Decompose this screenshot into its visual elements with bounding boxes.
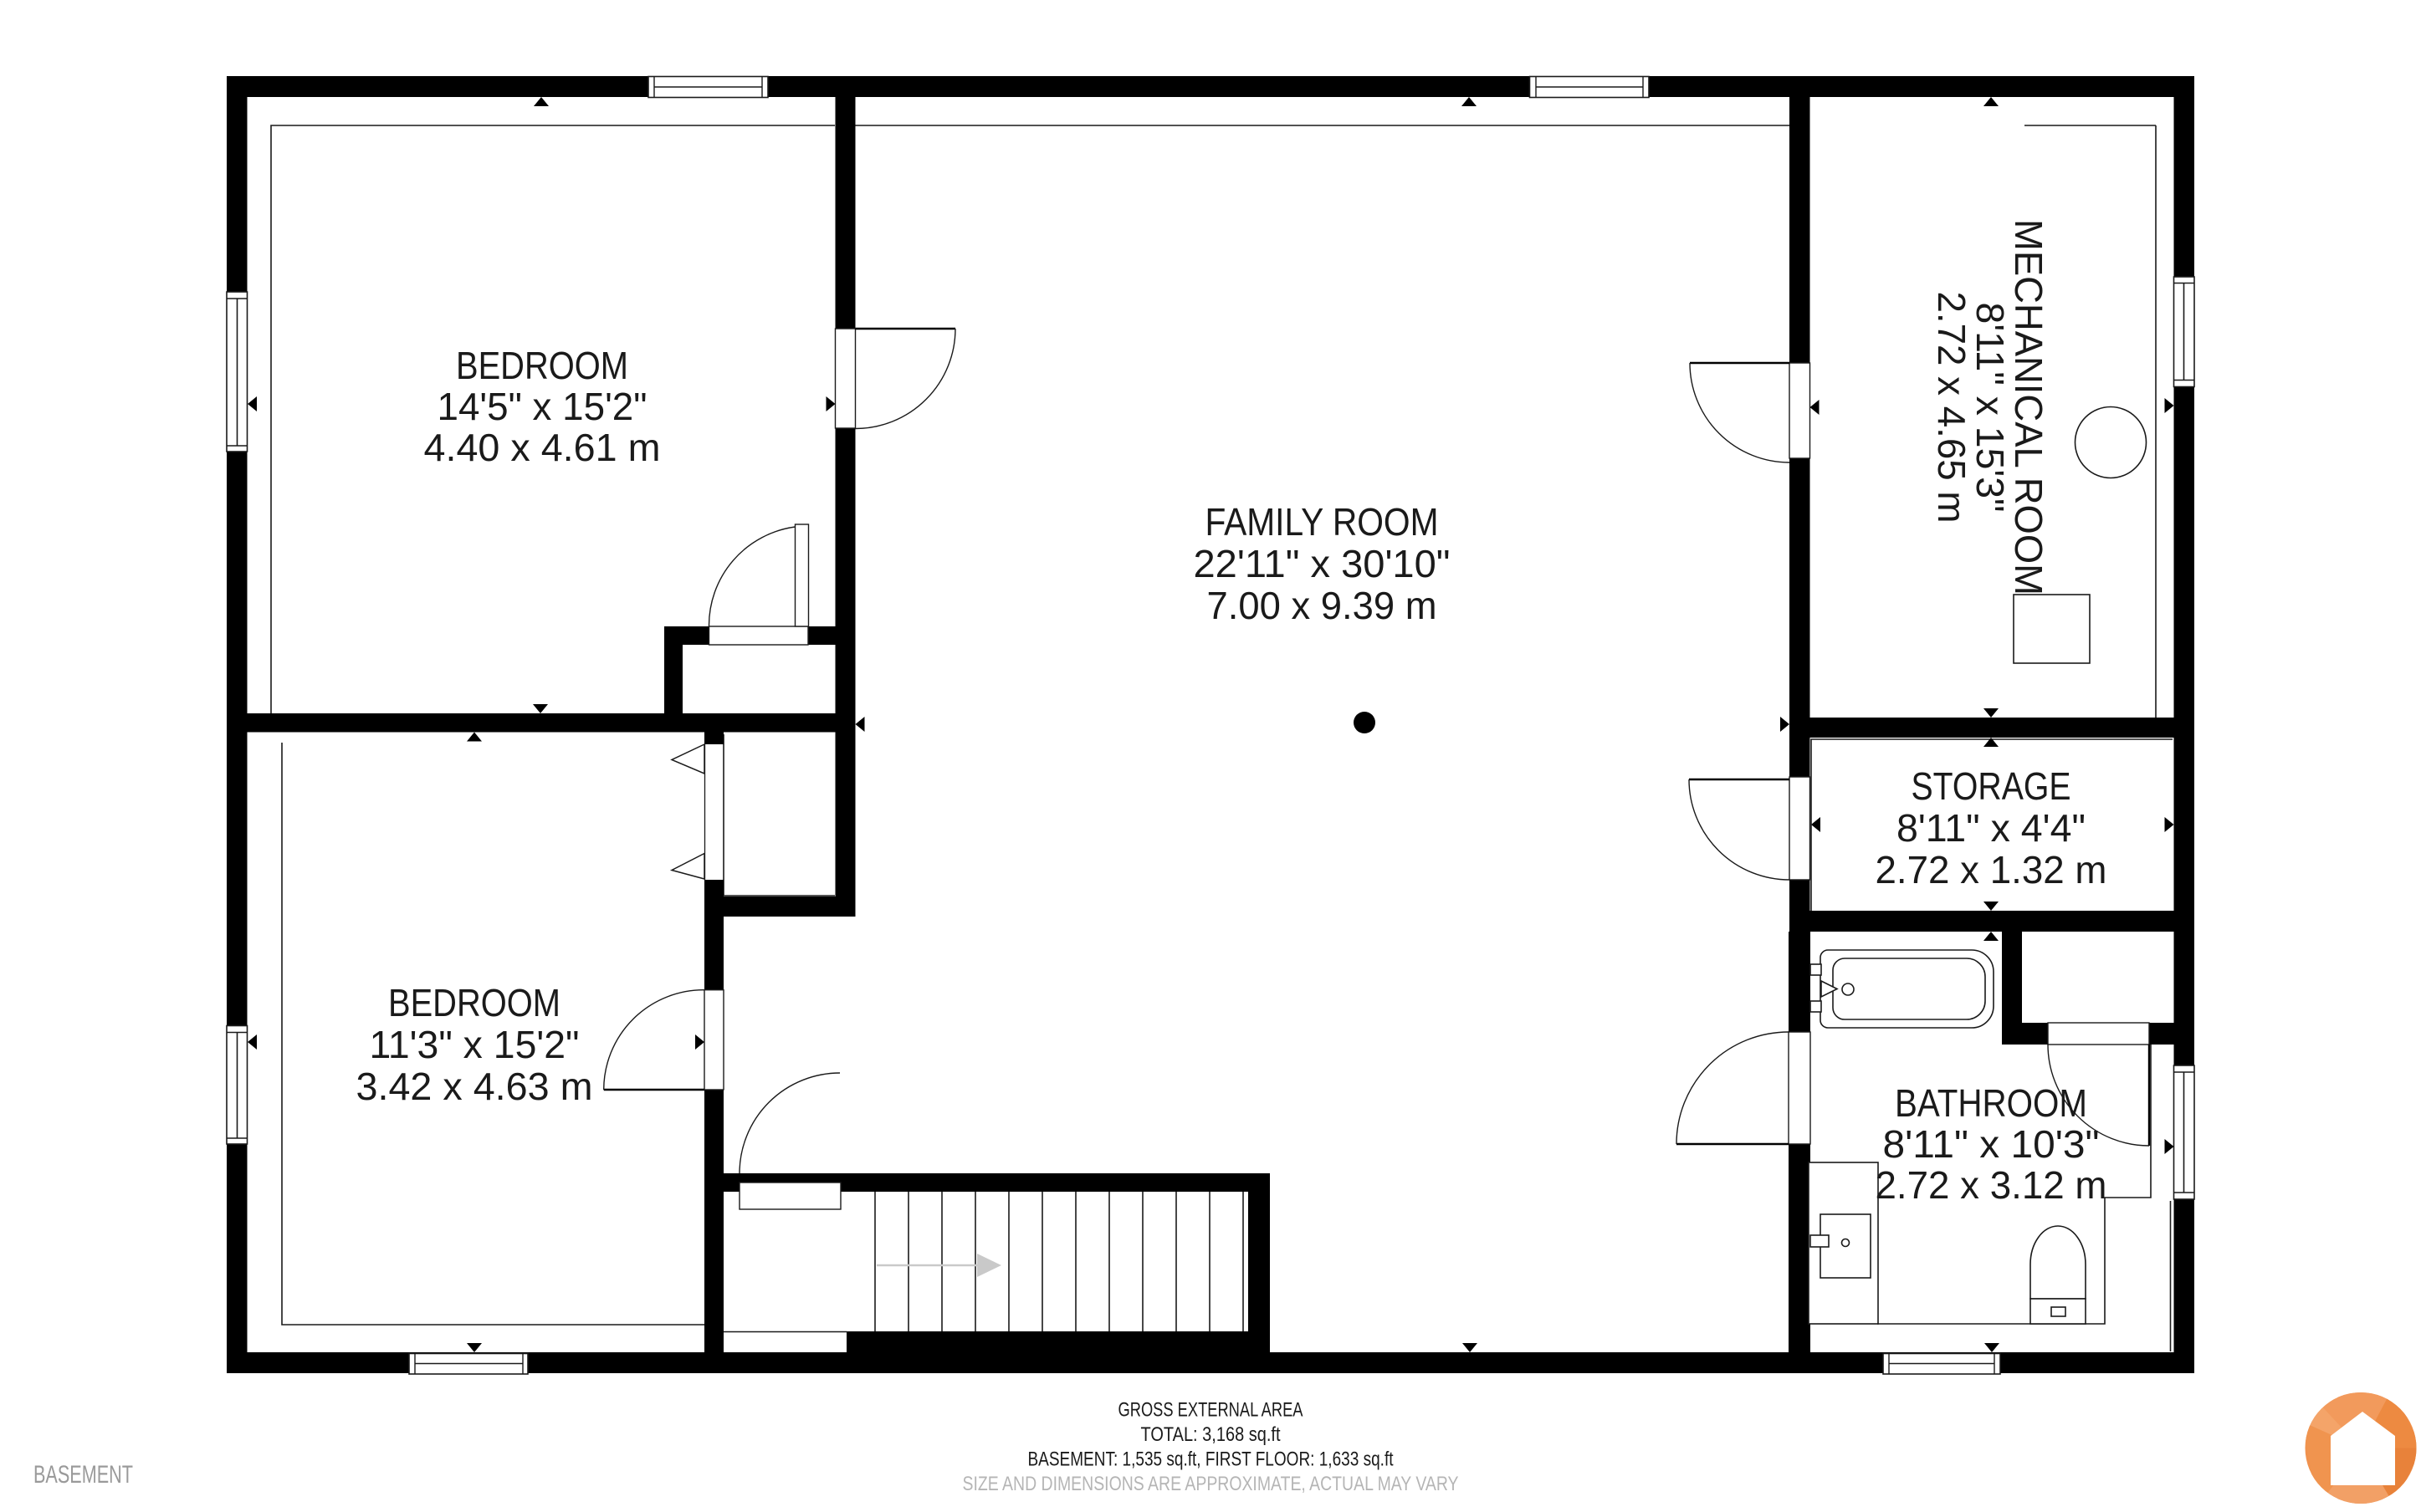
- svg-text:8'11" x 15'3": 8'11" x 15'3": [1968, 303, 2012, 513]
- svg-text:GROSS EXTERNAL AREA: GROSS EXTERNAL AREA: [1118, 1399, 1303, 1422]
- svg-text:14'5" x 15'2": 14'5" x 15'2": [438, 385, 647, 428]
- svg-text:BEDROOM: BEDROOM: [456, 344, 628, 387]
- svg-text:STORAGE: STORAGE: [1912, 764, 2071, 808]
- svg-text:BATHROOM: BATHROOM: [1895, 1081, 2087, 1125]
- svg-text:8'11" x 10'3": 8'11" x 10'3": [1883, 1122, 2100, 1166]
- svg-text:22'11" x 30'10": 22'11" x 30'10": [1194, 542, 1451, 585]
- svg-text:2.72 x 3.12 m: 2.72 x 3.12 m: [1876, 1163, 2107, 1207]
- svg-text:11'3" x 15'2": 11'3" x 15'2": [370, 1023, 580, 1066]
- svg-text:MECHANICAL ROOM: MECHANICAL ROOM: [2007, 219, 2050, 595]
- svg-text:BASEMENT: BASEMENT: [33, 1461, 133, 1489]
- svg-text:3.42 x 4.63 m: 3.42 x 4.63 m: [356, 1065, 593, 1108]
- svg-text:TOTAL: 3,168 sq.ft: TOTAL: 3,168 sq.ft: [1141, 1423, 1281, 1446]
- svg-text:4.40 x 4.61 m: 4.40 x 4.61 m: [424, 426, 661, 469]
- svg-text:SIZE AND DIMENSIONS ARE APPROX: SIZE AND DIMENSIONS ARE APPROXIMATE, ACT…: [963, 1473, 1459, 1495]
- svg-text:8'11" x 4'4": 8'11" x 4'4": [1896, 806, 2086, 850]
- svg-text:BEDROOM: BEDROOM: [388, 981, 560, 1024]
- svg-text:FAMILY ROOM: FAMILY ROOM: [1205, 500, 1439, 544]
- svg-text:2.72 x 1.32 m: 2.72 x 1.32 m: [1876, 848, 2107, 891]
- svg-text:BASEMENT: 1,535 sq.ft, FIRST F: BASEMENT: 1,535 sq.ft, FIRST FLOOR: 1,63…: [1028, 1448, 1394, 1471]
- svg-text:7.00 x 9.39 m: 7.00 x 9.39 m: [1207, 584, 1437, 627]
- svg-text:2.72 x 4.65 m: 2.72 x 4.65 m: [1930, 292, 1973, 524]
